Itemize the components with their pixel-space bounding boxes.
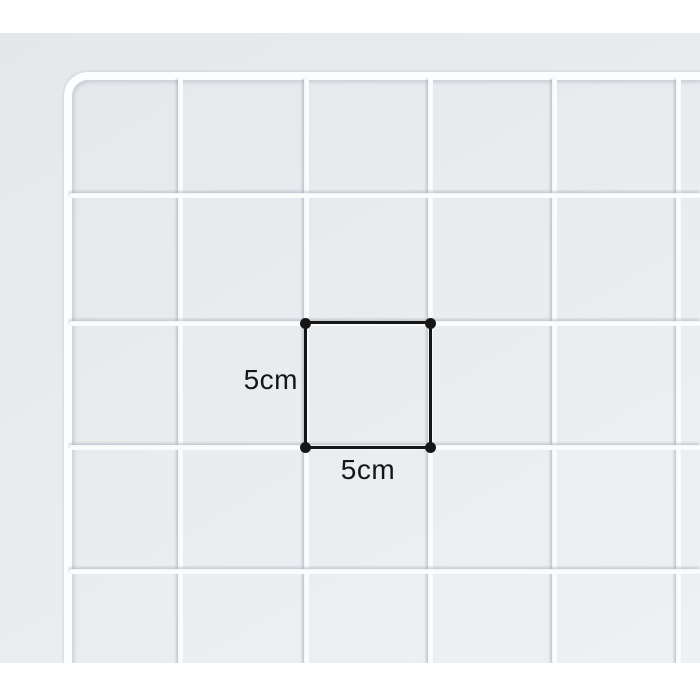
grid-wire-horizontal	[70, 569, 700, 574]
product-photo: 5cm 5cm	[0, 33, 700, 663]
product-image: 5cm 5cm	[0, 0, 700, 700]
measurement-square	[304, 321, 432, 449]
corner-dot-top-right	[425, 318, 436, 329]
corner-dot-bottom-right	[425, 442, 436, 453]
corner-dot-bottom-left	[300, 442, 311, 453]
width-measurement-label: 5cm	[318, 454, 418, 486]
corner-dot-top-left	[300, 318, 311, 329]
grid-wire-vertical	[552, 78, 557, 663]
grid-wire-horizontal	[70, 193, 700, 198]
height-measurement-label: 5cm	[178, 364, 298, 396]
grid-wire-vertical	[676, 78, 681, 663]
